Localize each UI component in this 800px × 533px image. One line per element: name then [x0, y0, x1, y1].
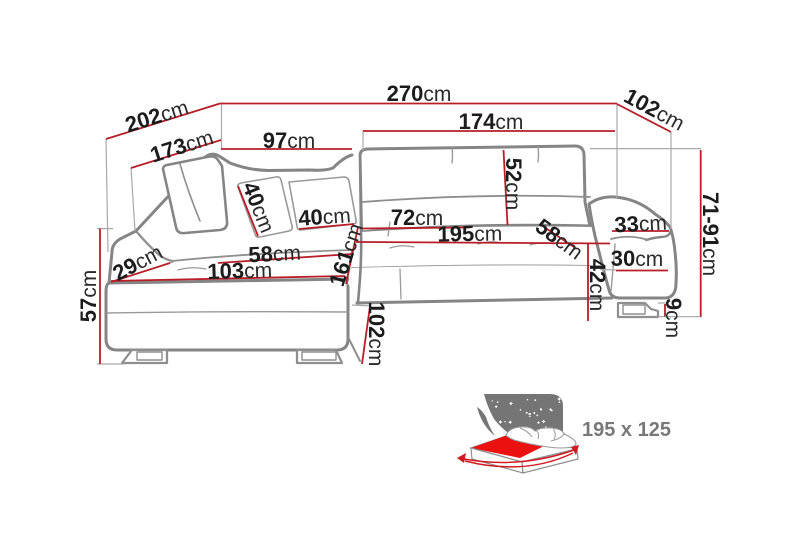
svg-text:42cm: 42cm — [585, 259, 610, 311]
svg-text:103cm: 103cm — [207, 257, 273, 284]
svg-text:102cm: 102cm — [364, 302, 389, 367]
svg-text:102cm: 102cm — [620, 83, 689, 135]
svg-text:52cm: 52cm — [501, 158, 526, 210]
svg-text:33cm: 33cm — [614, 210, 668, 238]
svg-text:202cm: 202cm — [122, 94, 191, 137]
svg-text:97cm: 97cm — [263, 128, 315, 153]
svg-text:9cm: 9cm — [661, 298, 686, 338]
svg-text:71-91cm: 71-91cm — [698, 192, 723, 276]
svg-text:57cm: 57cm — [76, 270, 101, 322]
svg-text:195 x 125: 195 x 125 — [582, 419, 671, 441]
svg-text:174cm: 174cm — [459, 109, 524, 134]
svg-text:30cm: 30cm — [611, 246, 663, 271]
svg-text:270cm: 270cm — [387, 81, 452, 106]
svg-text:72cm: 72cm — [391, 205, 443, 230]
svg-text:195cm: 195cm — [437, 220, 502, 246]
